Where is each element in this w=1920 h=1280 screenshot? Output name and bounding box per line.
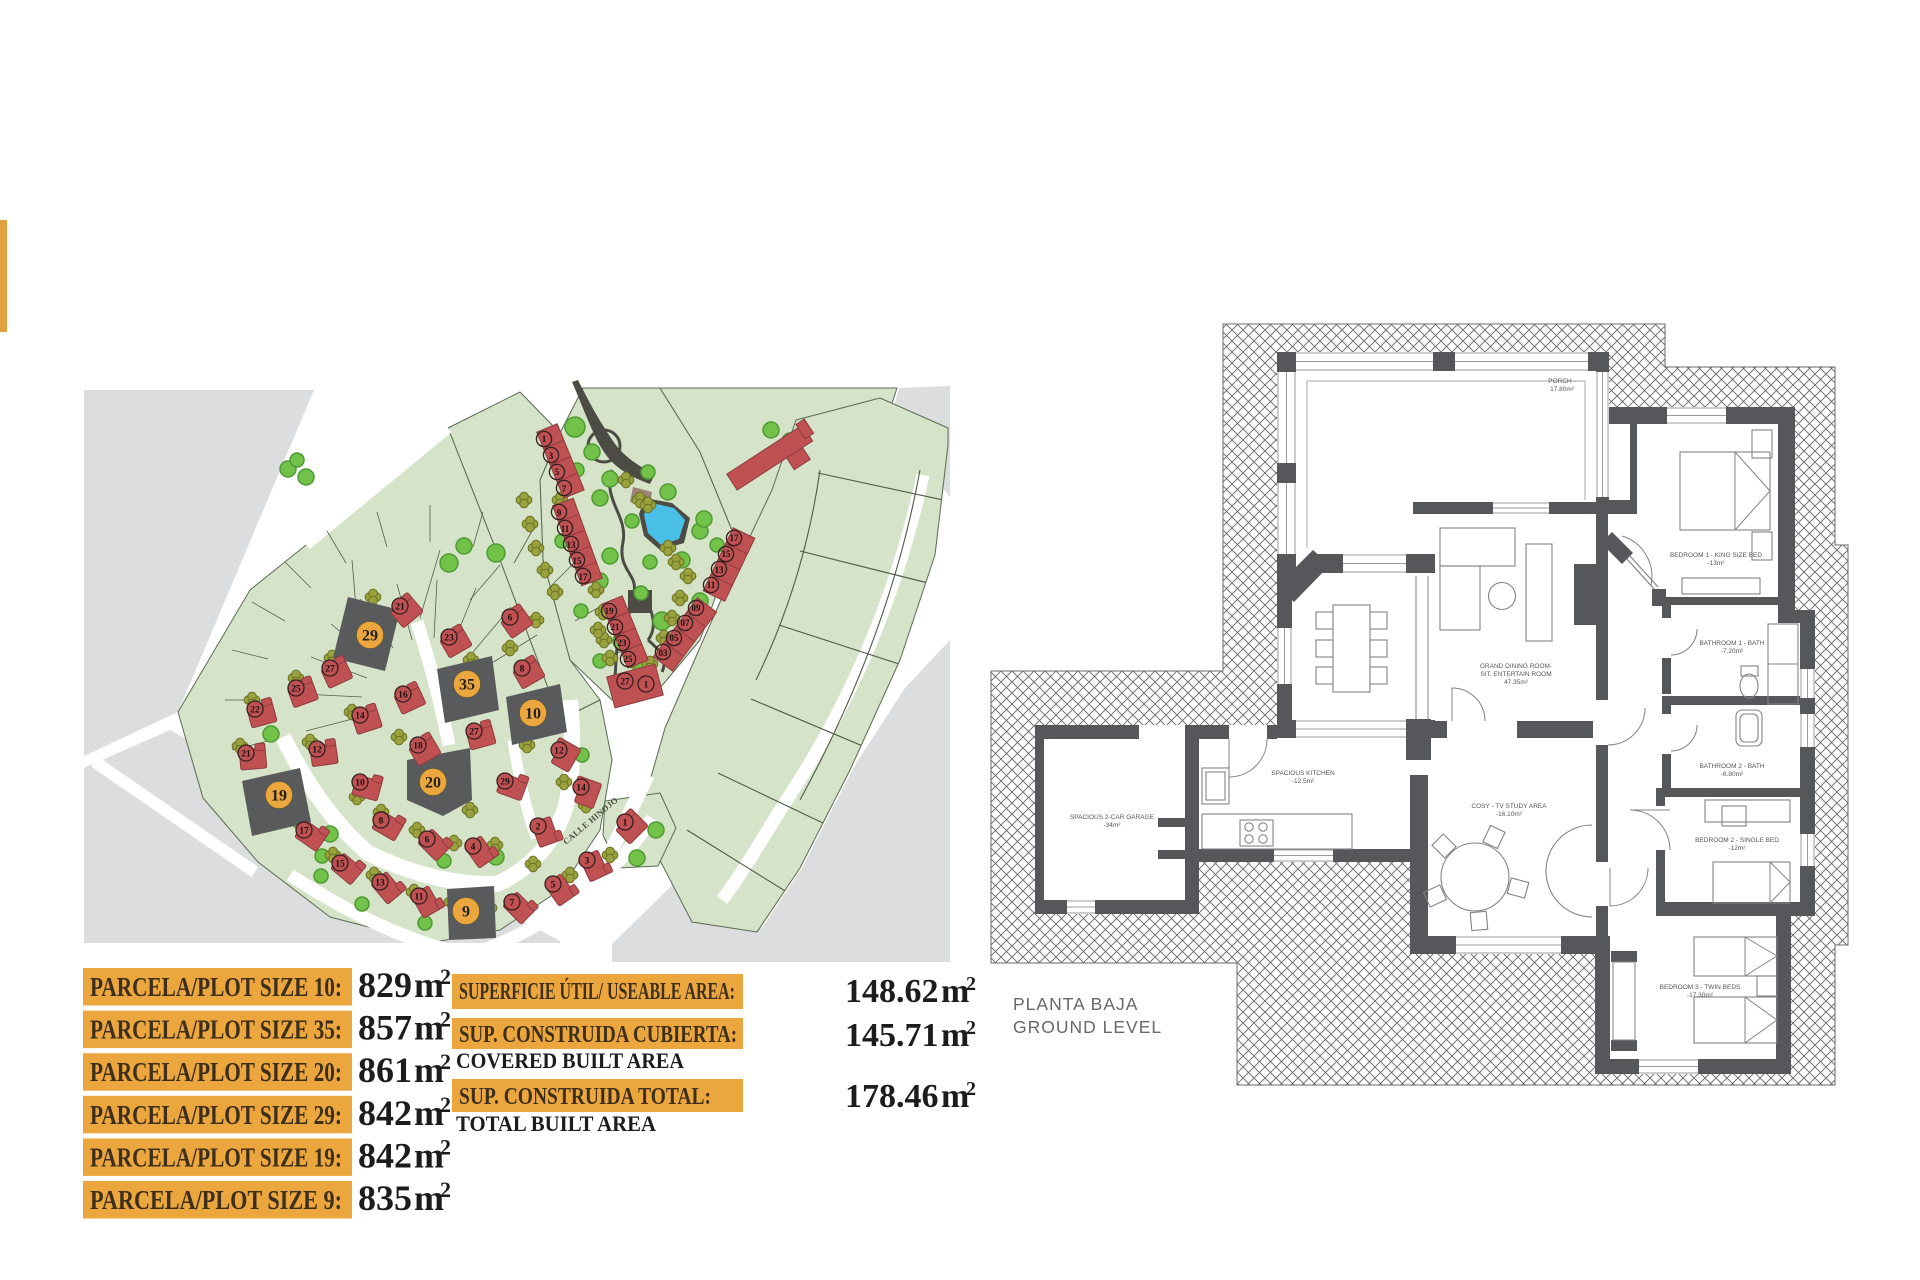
svg-text:8: 8 [379, 816, 384, 826]
svg-text:PORCH -: PORCH - [1548, 378, 1575, 385]
svg-text:4: 4 [471, 842, 476, 852]
svg-text:TOTAL BUILT AREA: TOTAL BUILT AREA [456, 1111, 656, 1136]
svg-text:27: 27 [325, 664, 335, 674]
svg-text:2: 2 [966, 973, 976, 995]
svg-text:BATHROOM 1 - BATH: BATHROOM 1 - BATH [1699, 640, 1764, 647]
svg-text:861: 861 [358, 1050, 412, 1090]
svg-text:25: 25 [624, 654, 634, 664]
svg-text:23: 23 [618, 638, 628, 648]
svg-text:BATHROOM 2 - BATH: BATHROOM 2 - BATH [1699, 763, 1764, 770]
svg-text:1: 1 [542, 434, 547, 444]
svg-text:29: 29 [500, 777, 510, 787]
svg-text:18: 18 [413, 741, 423, 751]
svg-text:16: 16 [398, 690, 408, 700]
svg-text:BEDROOM 1 - KING SIZE BED: BEDROOM 1 - KING SIZE BED [1670, 552, 1762, 559]
svg-text:2: 2 [536, 822, 541, 832]
svg-text:13: 13 [567, 540, 577, 550]
svg-text:2: 2 [966, 1017, 976, 1039]
svg-text:1: 1 [644, 680, 649, 690]
svg-text:27: 27 [621, 677, 631, 687]
svg-text:6: 6 [425, 835, 430, 845]
svg-text:-13m²: -13m² [1708, 560, 1726, 567]
svg-text:PLANTA BAJA: PLANTA BAJA [1013, 994, 1138, 1014]
svg-text:PARCELA/PLOT SIZE 29:: PARCELA/PLOT SIZE 29: [90, 1100, 342, 1130]
svg-text:-12m²: -12m² [1729, 845, 1747, 852]
svg-text:-17.30m²: -17.30m² [1687, 992, 1714, 999]
svg-text:35: 35 [459, 677, 475, 694]
svg-text:1: 1 [623, 818, 628, 828]
svg-text:842: 842 [358, 1093, 412, 1133]
svg-text:9: 9 [462, 904, 470, 921]
svg-text:SPACIOUS 2-CAR GARAGE: SPACIOUS 2-CAR GARAGE [1070, 814, 1155, 821]
svg-text:SPACIOUS KITCHEN: SPACIOUS KITCHEN [1271, 770, 1335, 777]
svg-text:SUPERFICIE ÚTIL/ USEABLE AREA:: SUPERFICIE ÚTIL/ USEABLE AREA: [459, 979, 735, 1005]
svg-text:-12.5m²: -12.5m² [1292, 778, 1315, 785]
svg-text:2: 2 [440, 964, 451, 989]
svg-text:21: 21 [611, 622, 621, 632]
svg-text:-34m²: -34m² [1104, 822, 1122, 829]
svg-text:5: 5 [551, 880, 556, 890]
svg-text:SUP. CONSTRUIDA TOTAL:: SUP. CONSTRUIDA TOTAL: [459, 1084, 711, 1110]
svg-text:2: 2 [440, 1134, 451, 1159]
svg-text:2: 2 [440, 1049, 451, 1074]
svg-text:SIT. ENTERTAIN ROOM: SIT. ENTERTAIN ROOM [1480, 671, 1551, 678]
svg-text:15: 15 [335, 859, 345, 869]
svg-text:9: 9 [557, 508, 562, 518]
svg-text:-6.80m²: -6.80m² [1721, 771, 1744, 778]
svg-text:09: 09 [692, 603, 702, 613]
svg-text:14: 14 [576, 783, 586, 793]
svg-text:12: 12 [312, 745, 322, 755]
svg-text:PARCELA/PLOT SIZE 20:: PARCELA/PLOT SIZE 20: [90, 1057, 342, 1087]
svg-text:7: 7 [562, 484, 567, 494]
svg-text:05: 05 [670, 633, 680, 643]
svg-text:178.46: 178.46 [845, 1078, 939, 1115]
svg-text:22: 22 [250, 705, 260, 715]
svg-text:148.62: 148.62 [845, 973, 939, 1010]
svg-text:BEDROOM 3 - TWIN BEDS: BEDROOM 3 - TWIN BEDS [1660, 984, 1741, 991]
svg-text:13: 13 [375, 878, 385, 888]
svg-text:-7.20m²: -7.20m² [1721, 648, 1744, 655]
svg-text:-16.10m²: -16.10m² [1496, 811, 1523, 818]
svg-text:47.35m²: 47.35m² [1504, 679, 1529, 686]
svg-text:3: 3 [549, 451, 554, 461]
svg-text:2: 2 [440, 1177, 451, 1202]
svg-text:15: 15 [573, 556, 583, 566]
svg-text:145.71: 145.71 [845, 1017, 939, 1054]
svg-text:PARCELA/PLOT SIZE 10:: PARCELA/PLOT SIZE 10: [90, 972, 342, 1002]
svg-text:12: 12 [554, 746, 564, 756]
svg-text:835: 835 [358, 1178, 412, 1218]
svg-text:7: 7 [510, 898, 515, 908]
svg-text:GRAND DINING ROOM-: GRAND DINING ROOM- [1480, 663, 1552, 670]
svg-text:10: 10 [525, 706, 541, 723]
svg-text:13: 13 [715, 565, 725, 575]
svg-text:17: 17 [730, 533, 740, 543]
svg-text:SUP. CONSTRUIDA CUBIERTA:: SUP. CONSTRUIDA CUBIERTA: [459, 1022, 737, 1048]
svg-text:2: 2 [440, 1007, 451, 1032]
svg-text:5: 5 [555, 467, 560, 477]
svg-text:GROUND LEVEL: GROUND LEVEL [1013, 1017, 1162, 1037]
svg-text:BEDROOM 2 - SINGLE BED: BEDROOM 2 - SINGLE BED [1695, 837, 1779, 844]
svg-text:29: 29 [362, 628, 378, 645]
svg-text:15: 15 [722, 549, 732, 559]
svg-text:PARCELA/PLOT SIZE 9:: PARCELA/PLOT SIZE 9: [90, 1185, 342, 1215]
svg-text:14: 14 [355, 711, 365, 721]
svg-text:25: 25 [291, 684, 301, 694]
svg-text:PARCELA/PLOT SIZE 35:: PARCELA/PLOT SIZE 35: [90, 1015, 342, 1045]
svg-text:PARCELA/PLOT SIZE 19:: PARCELA/PLOT SIZE 19: [90, 1142, 342, 1172]
svg-text:21: 21 [395, 602, 405, 612]
svg-text:21: 21 [241, 749, 251, 759]
svg-text:10: 10 [355, 778, 365, 788]
svg-text:20: 20 [425, 775, 441, 792]
svg-text:11: 11 [707, 580, 716, 590]
svg-text:842: 842 [358, 1135, 412, 1175]
svg-text:11: 11 [415, 892, 424, 902]
svg-text:COVERED BUILT AREA: COVERED BUILT AREA [456, 1048, 684, 1073]
svg-text:23: 23 [444, 633, 454, 643]
svg-text:17: 17 [299, 826, 309, 836]
svg-text:07: 07 [681, 618, 691, 628]
svg-text:03: 03 [659, 648, 669, 658]
svg-text:11: 11 [561, 524, 570, 534]
svg-text:2: 2 [440, 1092, 451, 1117]
svg-text:2: 2 [966, 1078, 976, 1100]
svg-text:27: 27 [469, 727, 479, 737]
svg-text:17.80m²: 17.80m² [1550, 386, 1575, 393]
svg-text:17: 17 [579, 572, 589, 582]
svg-text:COSY - TV STUDY AREA: COSY - TV STUDY AREA [1471, 803, 1547, 810]
svg-text:3: 3 [585, 856, 590, 866]
svg-text:829: 829 [358, 965, 412, 1005]
svg-text:6: 6 [508, 613, 513, 623]
svg-text:8: 8 [520, 664, 525, 674]
svg-text:857: 857 [358, 1008, 412, 1048]
svg-text:19: 19 [271, 788, 287, 805]
svg-text:19: 19 [605, 606, 615, 616]
